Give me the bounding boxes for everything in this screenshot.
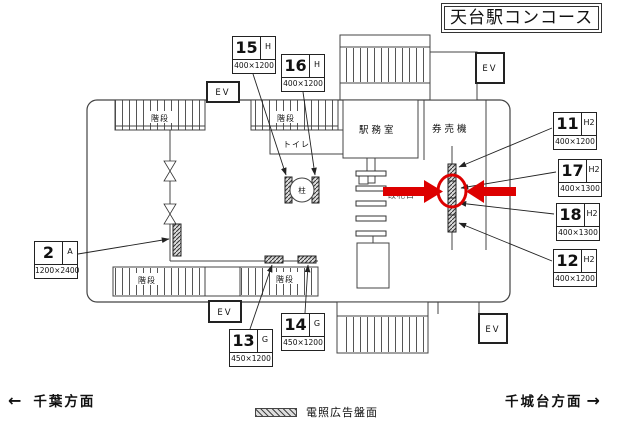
board-size: 400×1200	[232, 60, 276, 74]
board-label-14: 14G 450×1200	[281, 313, 325, 351]
station-office-label: 駅務室	[359, 124, 397, 136]
board-number: 15	[233, 37, 260, 59]
board-label-17: 17H2 400×1300	[558, 159, 602, 197]
elevator-label: EV	[215, 88, 230, 98]
ad-board-12	[448, 215, 456, 232]
leader-board-18	[459, 203, 554, 214]
board-code: H2	[581, 250, 596, 272]
board-number: 2	[35, 242, 62, 264]
left-arrow-icon: ←	[8, 391, 21, 410]
elevator-top-center: EV	[207, 82, 239, 102]
direction-chiba-label: 千葉方面	[33, 390, 95, 410]
stairs-label: 階段	[138, 275, 156, 285]
board-number: 17	[559, 160, 586, 182]
board-number: 13	[230, 330, 257, 352]
board-size: 1200×2400	[34, 265, 78, 279]
board-label-16: 16H 400×1200	[281, 54, 325, 92]
board-code: G	[257, 330, 272, 352]
board-code: H2	[584, 204, 599, 226]
board-number: 14	[282, 314, 309, 336]
elevator-bottom-center: EV	[209, 301, 241, 322]
leader-board-11	[459, 128, 552, 167]
board-number: 11	[554, 113, 581, 135]
ad-wall-right	[448, 146, 456, 250]
stairs-label: 階段	[277, 113, 295, 123]
board-label-12: 12H2 400×1200	[553, 249, 597, 287]
station-concourse-map: 階段 階段 トイレ 階段	[0, 0, 640, 424]
stairs-label: 階段	[276, 274, 294, 284]
board-number: 18	[557, 204, 584, 226]
elevator-label: EV	[485, 325, 500, 335]
stairs-bottom-left: 階段 階段	[113, 267, 318, 296]
ad-board-11	[448, 164, 456, 181]
elevator-label: EV	[217, 308, 232, 318]
stairs-bottom-right	[337, 302, 479, 353]
ticket-machines-label: 券売機	[432, 123, 470, 135]
leader-board-2	[78, 239, 169, 254]
board-code: H2	[581, 113, 596, 135]
legend: 電照広告盤面	[255, 404, 378, 420]
board-size: 400×1200	[281, 78, 325, 92]
door-swing-icon	[164, 204, 176, 224]
highlight-arrow-left	[466, 180, 516, 203]
stair-lobby	[430, 52, 477, 100]
board-code: A	[62, 242, 77, 264]
board-code: G	[309, 314, 324, 336]
board-code: H	[260, 37, 275, 59]
stairs-label: 階段	[151, 113, 169, 123]
board-size: 400×1200	[553, 273, 597, 287]
board-number: 12	[554, 250, 581, 272]
legend-hatch-swatch	[255, 408, 297, 417]
ad-board-13	[265, 256, 283, 263]
board-code: H2	[586, 160, 601, 182]
pillar-label: 柱	[298, 185, 306, 195]
toilet-label: トイレ	[283, 140, 310, 149]
board-size: 400×1200	[553, 136, 597, 150]
board-label-15: 15H 400×1200	[232, 36, 276, 74]
board-label-11: 11H2 400×1200	[553, 112, 597, 150]
ad-board-2	[173, 224, 181, 256]
board-size: 400×1300	[558, 183, 602, 197]
pillar: 柱	[285, 177, 319, 203]
direction-chiba: ← 千葉方面	[8, 390, 95, 410]
direction-chishirodai-label: 千城台方面	[505, 390, 583, 410]
ad-board-17	[448, 181, 456, 198]
toilet-room: トイレ	[270, 130, 343, 154]
board-size: 400×1300	[556, 227, 600, 241]
stairs-top-right	[340, 35, 430, 100]
elevator-bottom-right: EV	[479, 314, 507, 343]
board-label-18: 18H2 400×1300	[556, 203, 600, 241]
elevator-top-right: EV	[476, 53, 504, 83]
board-size: 450×1200	[229, 353, 273, 367]
right-arrow-icon: →	[587, 391, 600, 410]
page-title: 天台駅コンコース	[444, 6, 599, 30]
door-swing-icon	[164, 161, 176, 181]
stairs-top-middle: 階段	[251, 100, 338, 130]
board-size: 450×1200	[281, 337, 325, 351]
gate-room	[357, 243, 389, 288]
board-label-13: 13G 450×1200	[229, 329, 273, 367]
ad-board-14	[298, 256, 316, 263]
page-title-box: 天台駅コンコース	[441, 3, 602, 33]
leader-board-12	[459, 223, 552, 261]
elevator-label: EV	[482, 64, 497, 74]
direction-chishirodai: 千城台方面 →	[505, 390, 600, 410]
legend-label: 電照広告盤面	[306, 404, 378, 420]
board-code: H	[309, 55, 324, 77]
station-office: 駅務室	[343, 100, 418, 158]
board-number: 16	[282, 55, 309, 77]
stairs-top-left: 階段	[115, 100, 205, 130]
board-label-2: 2A 1200×2400	[34, 241, 78, 279]
